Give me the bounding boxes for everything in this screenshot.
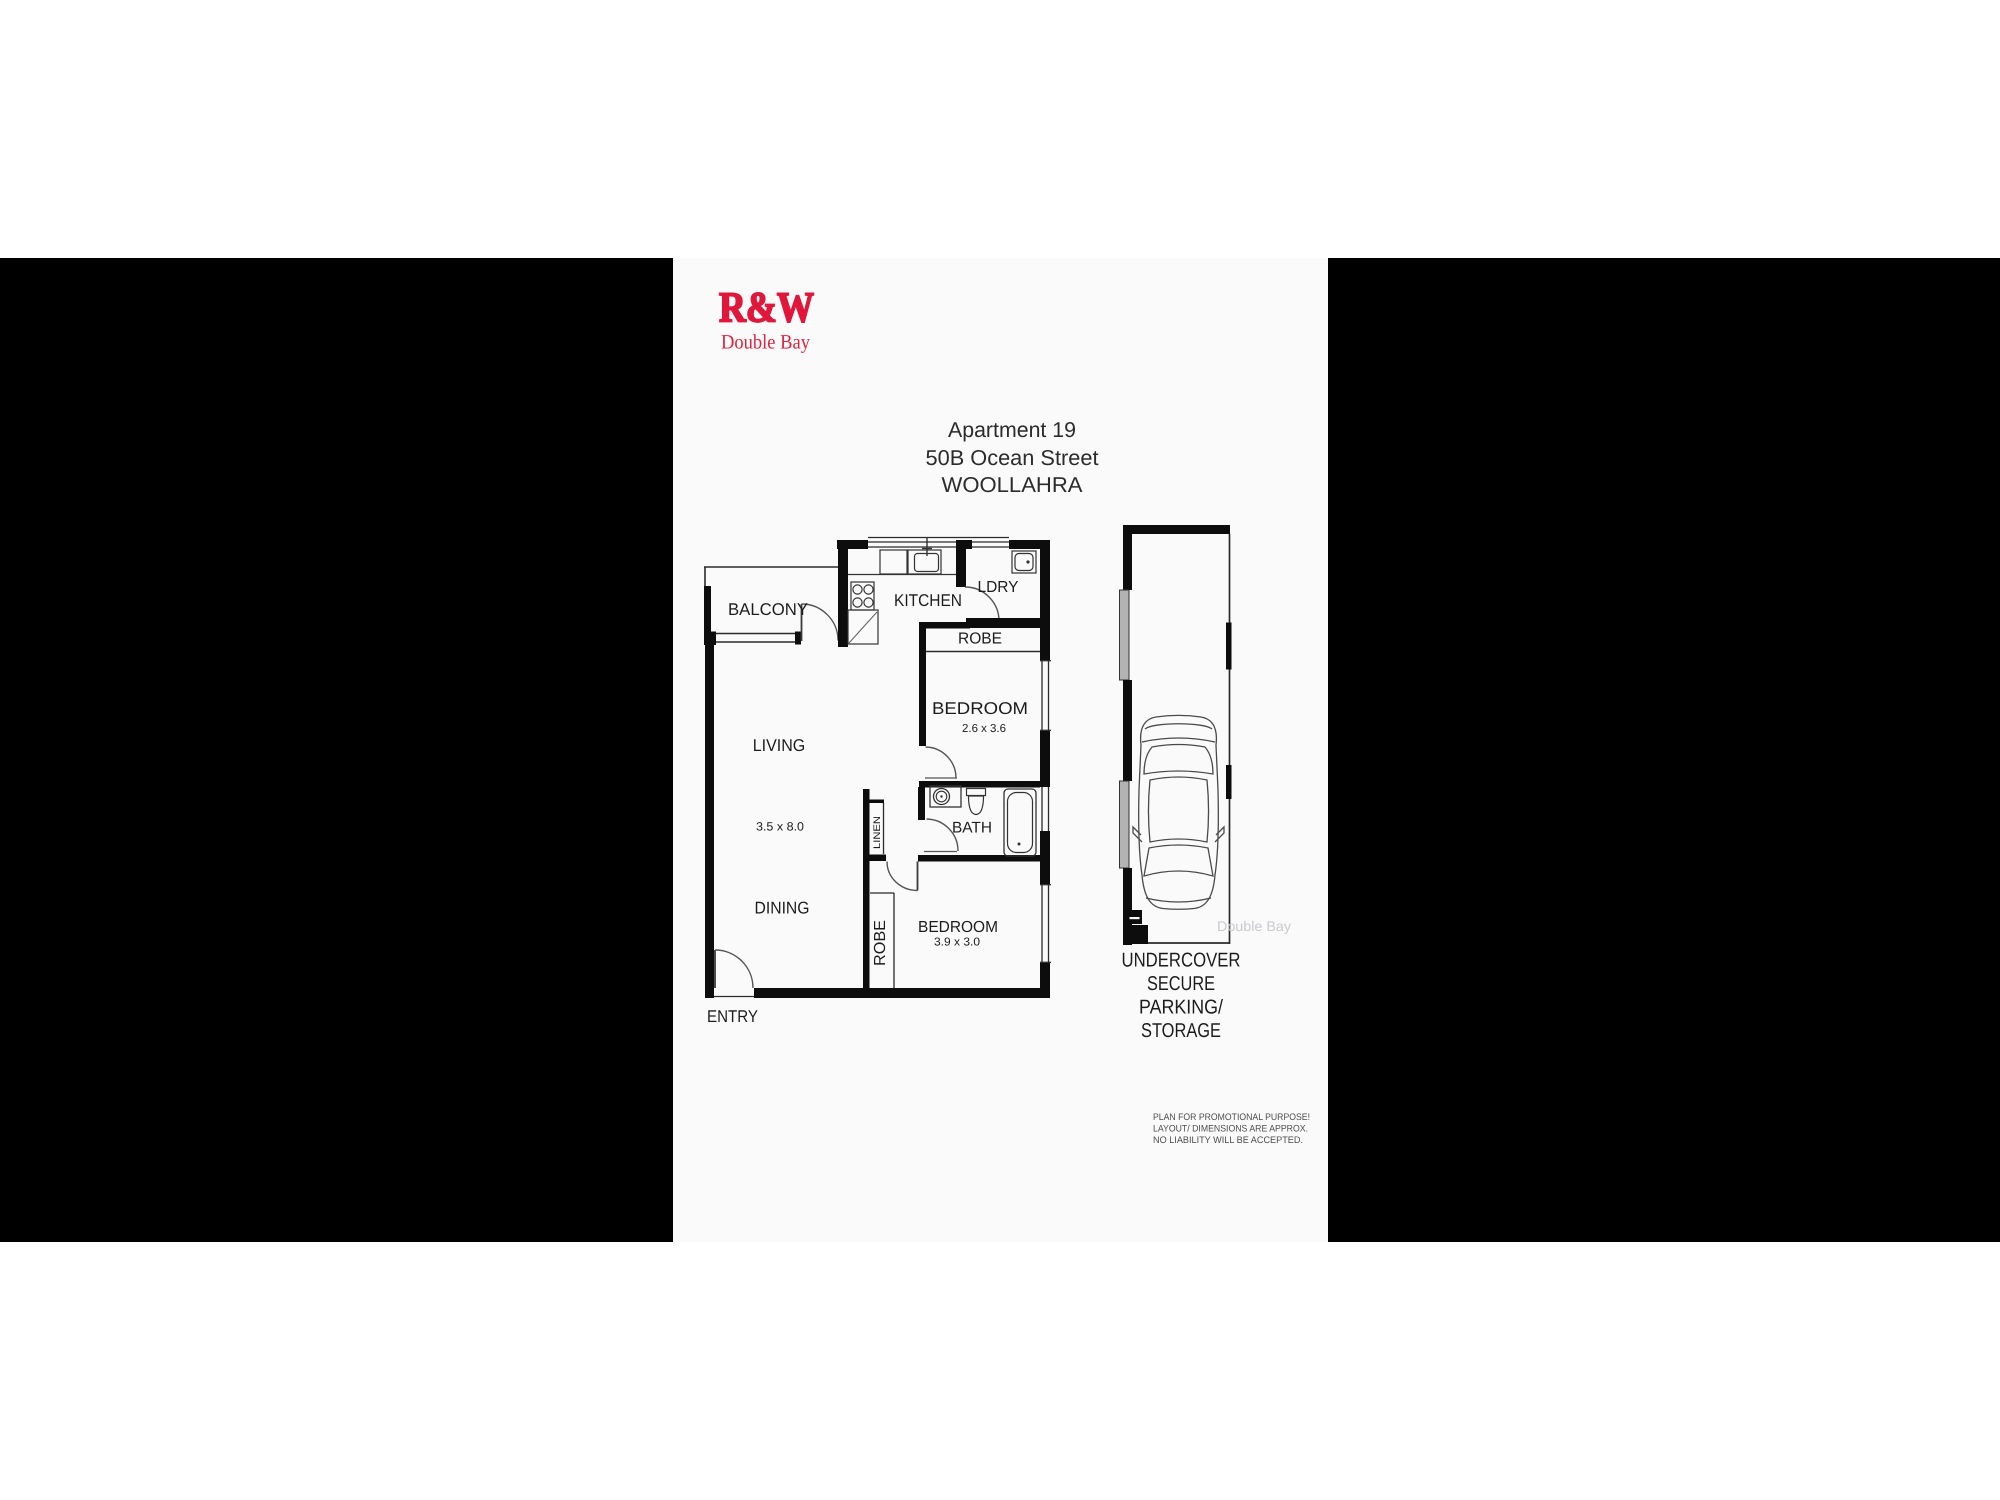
svg-text:UNDERCOVER: UNDERCOVER: [1122, 950, 1241, 972]
svg-text:STORAGE: STORAGE: [1141, 1020, 1221, 1042]
svg-text:LIVING: LIVING: [753, 736, 806, 755]
svg-text:WOOLLAHRA: WOOLLAHRA: [942, 473, 1084, 497]
svg-text:BEDROOM: BEDROOM: [918, 919, 998, 936]
svg-text:ENTRY: ENTRY: [707, 1007, 758, 1026]
svg-text:BEDROOM: BEDROOM: [932, 699, 1028, 718]
svg-text:Double Bay: Double Bay: [721, 332, 811, 354]
svg-text:3.9 x 3.0: 3.9 x 3.0: [934, 937, 980, 949]
svg-text:DINING: DINING: [755, 899, 810, 918]
svg-text:50B Ocean Street: 50B Ocean Street: [926, 446, 1099, 470]
svg-text:KITCHEN: KITCHEN: [894, 591, 962, 610]
svg-text:Double Bay: Double Bay: [1217, 918, 1291, 934]
svg-text:2.6 x 3.6: 2.6 x 3.6: [962, 723, 1006, 735]
svg-text:ROBE: ROBE: [872, 920, 889, 966]
svg-text:BALCONY: BALCONY: [728, 600, 808, 619]
svg-text:PLAN FOR PROMOTIONAL PURPOSE!: PLAN FOR PROMOTIONAL PURPOSE!: [1153, 1112, 1310, 1123]
svg-text:LDRY: LDRY: [978, 579, 1019, 596]
svg-text:LAYOUT/ DIMENSIONS ARE APPROX.: LAYOUT/ DIMENSIONS ARE APPROX.: [1153, 1124, 1308, 1135]
svg-text:NO LIABILITY WILL BE ACCEPTED.: NO LIABILITY WILL BE ACCEPTED.: [1153, 1135, 1303, 1146]
svg-text:Apartment 19: Apartment 19: [948, 418, 1076, 442]
svg-text:3.5 x 8.0: 3.5 x 8.0: [756, 820, 804, 834]
svg-text:R&W: R&W: [719, 285, 814, 332]
svg-text:SECURE: SECURE: [1147, 973, 1215, 995]
svg-text:PARKING/: PARKING/: [1139, 997, 1223, 1019]
svg-text:BATH: BATH: [952, 820, 992, 837]
svg-text:LINEN: LINEN: [872, 816, 883, 849]
svg-text:ROBE: ROBE: [958, 631, 1002, 648]
